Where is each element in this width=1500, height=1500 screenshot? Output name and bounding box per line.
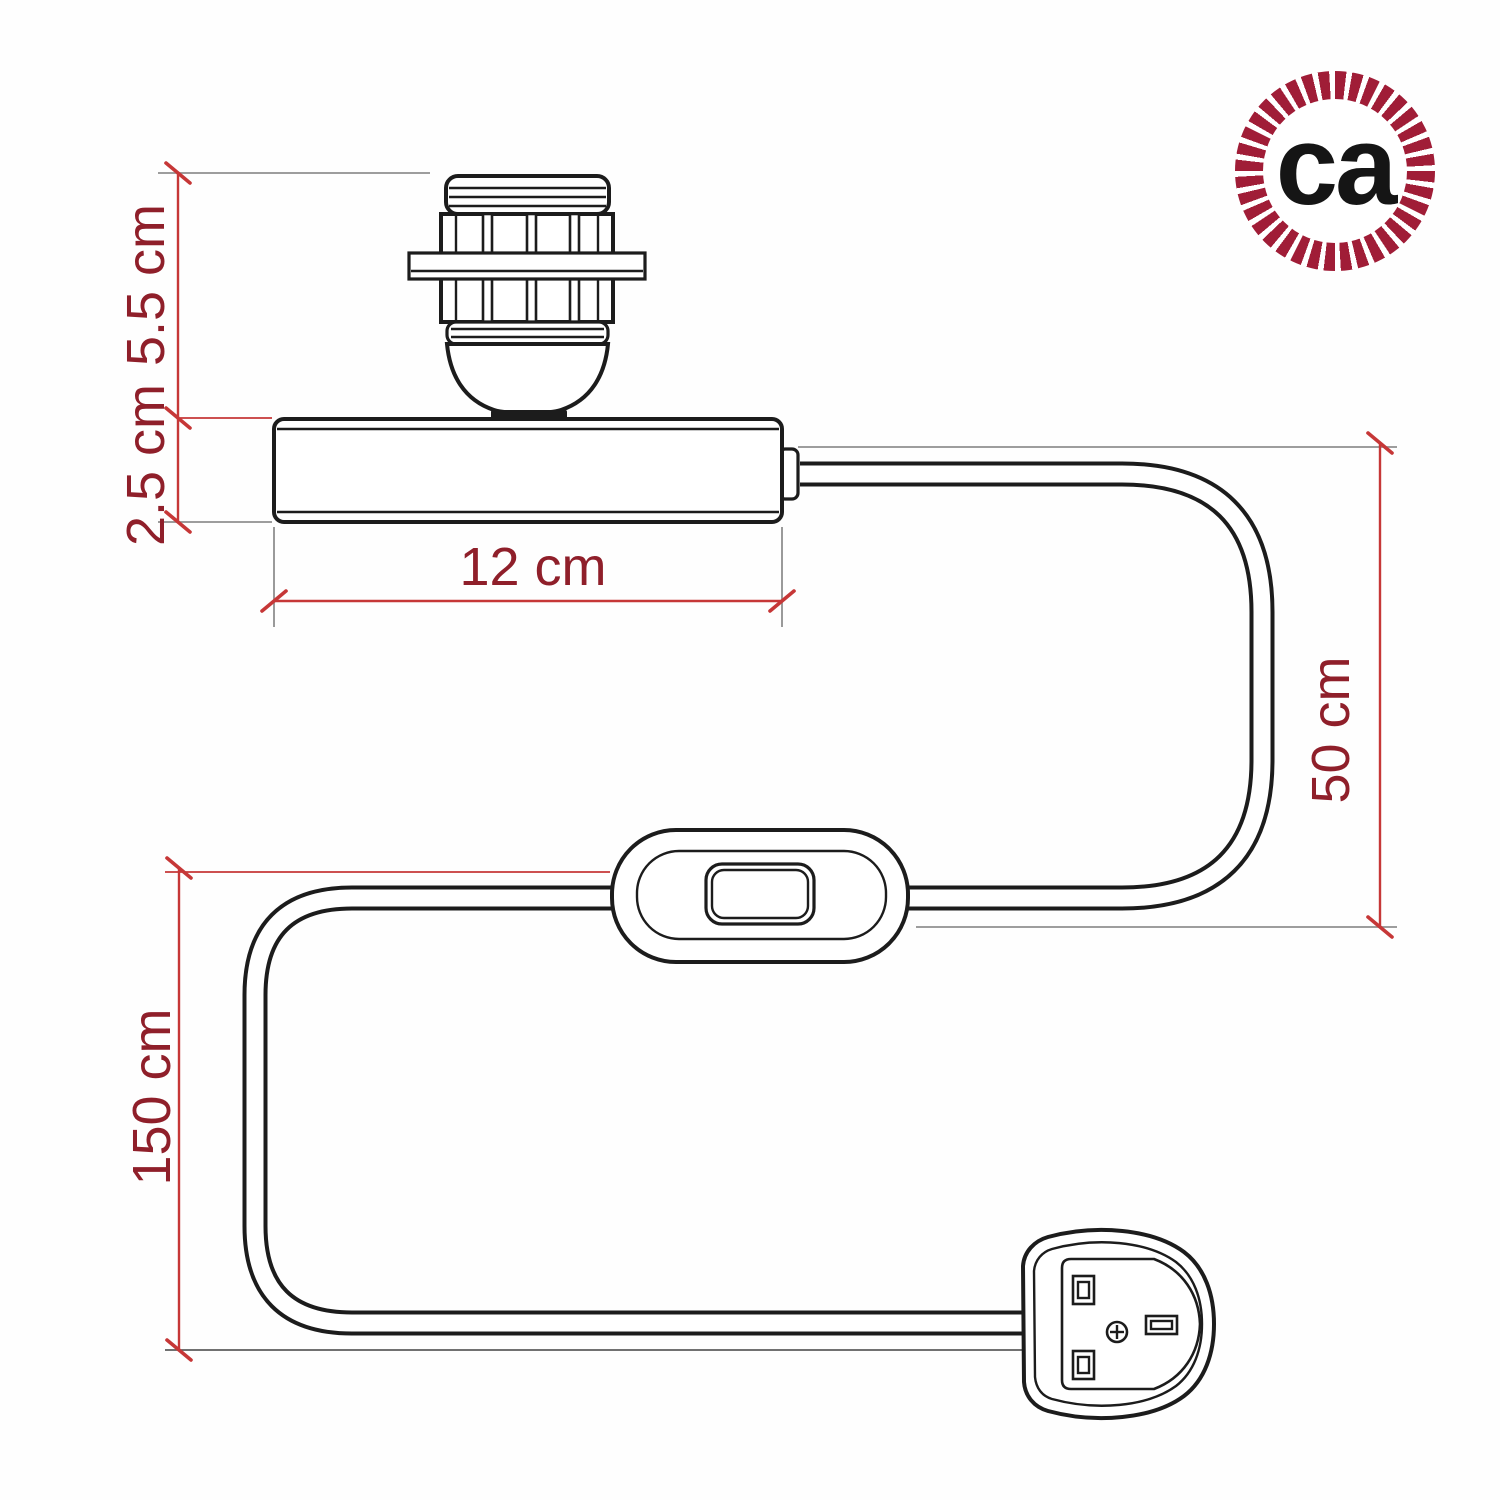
dimension-diagram: 5.5 cm 2.5 cm 12 cm 50 cm 150 cm ca (0, 0, 1500, 1500)
dimension-lines (166, 163, 1392, 1360)
lamp-holder (409, 176, 645, 419)
plug-pin-slot (1073, 1351, 1094, 1379)
dim-label-base-width: 12 cm (459, 540, 606, 594)
dim-label-base-height: 2.5 cm (119, 384, 173, 546)
uk-plug (1023, 1230, 1214, 1418)
lower-thread (447, 322, 608, 344)
brand-logo-text: ca (1235, 65, 1435, 265)
dim-label-socket-height: 5.5 cm (119, 204, 173, 366)
base-body (274, 419, 782, 522)
socket-neck (491, 410, 567, 419)
dim-label-lower-cable: 150 cm (125, 1008, 179, 1185)
cable-lower-run-fill (255, 898, 1040, 1323)
lamp-base (274, 419, 798, 522)
cable-lower-run (255, 898, 1040, 1323)
socket-cup (447, 344, 608, 413)
brand-logo: ca (1235, 71, 1435, 271)
dim-label-upper-cable: 50 cm (1304, 656, 1358, 803)
extension-lines (158, 173, 1397, 1350)
shade-support-ring (409, 253, 645, 279)
plug-pin-slot (1073, 1276, 1094, 1304)
switch-rocker (706, 864, 814, 924)
inline-switch (612, 830, 908, 962)
shade-ring-thread (446, 176, 609, 214)
